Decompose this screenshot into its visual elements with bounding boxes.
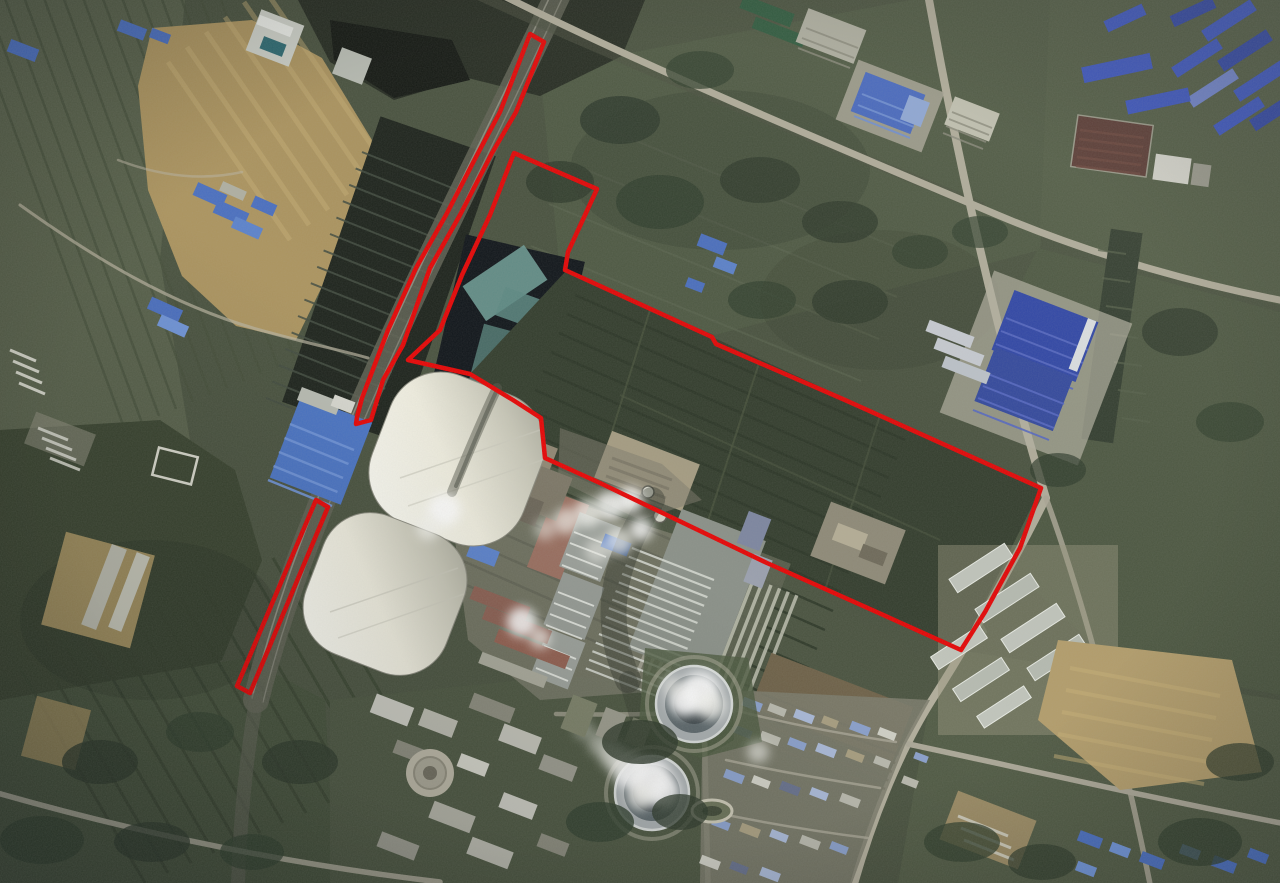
satellite-image [0, 0, 1280, 883]
image-grain [0, 0, 1280, 883]
screenshot-root [0, 0, 1280, 883]
